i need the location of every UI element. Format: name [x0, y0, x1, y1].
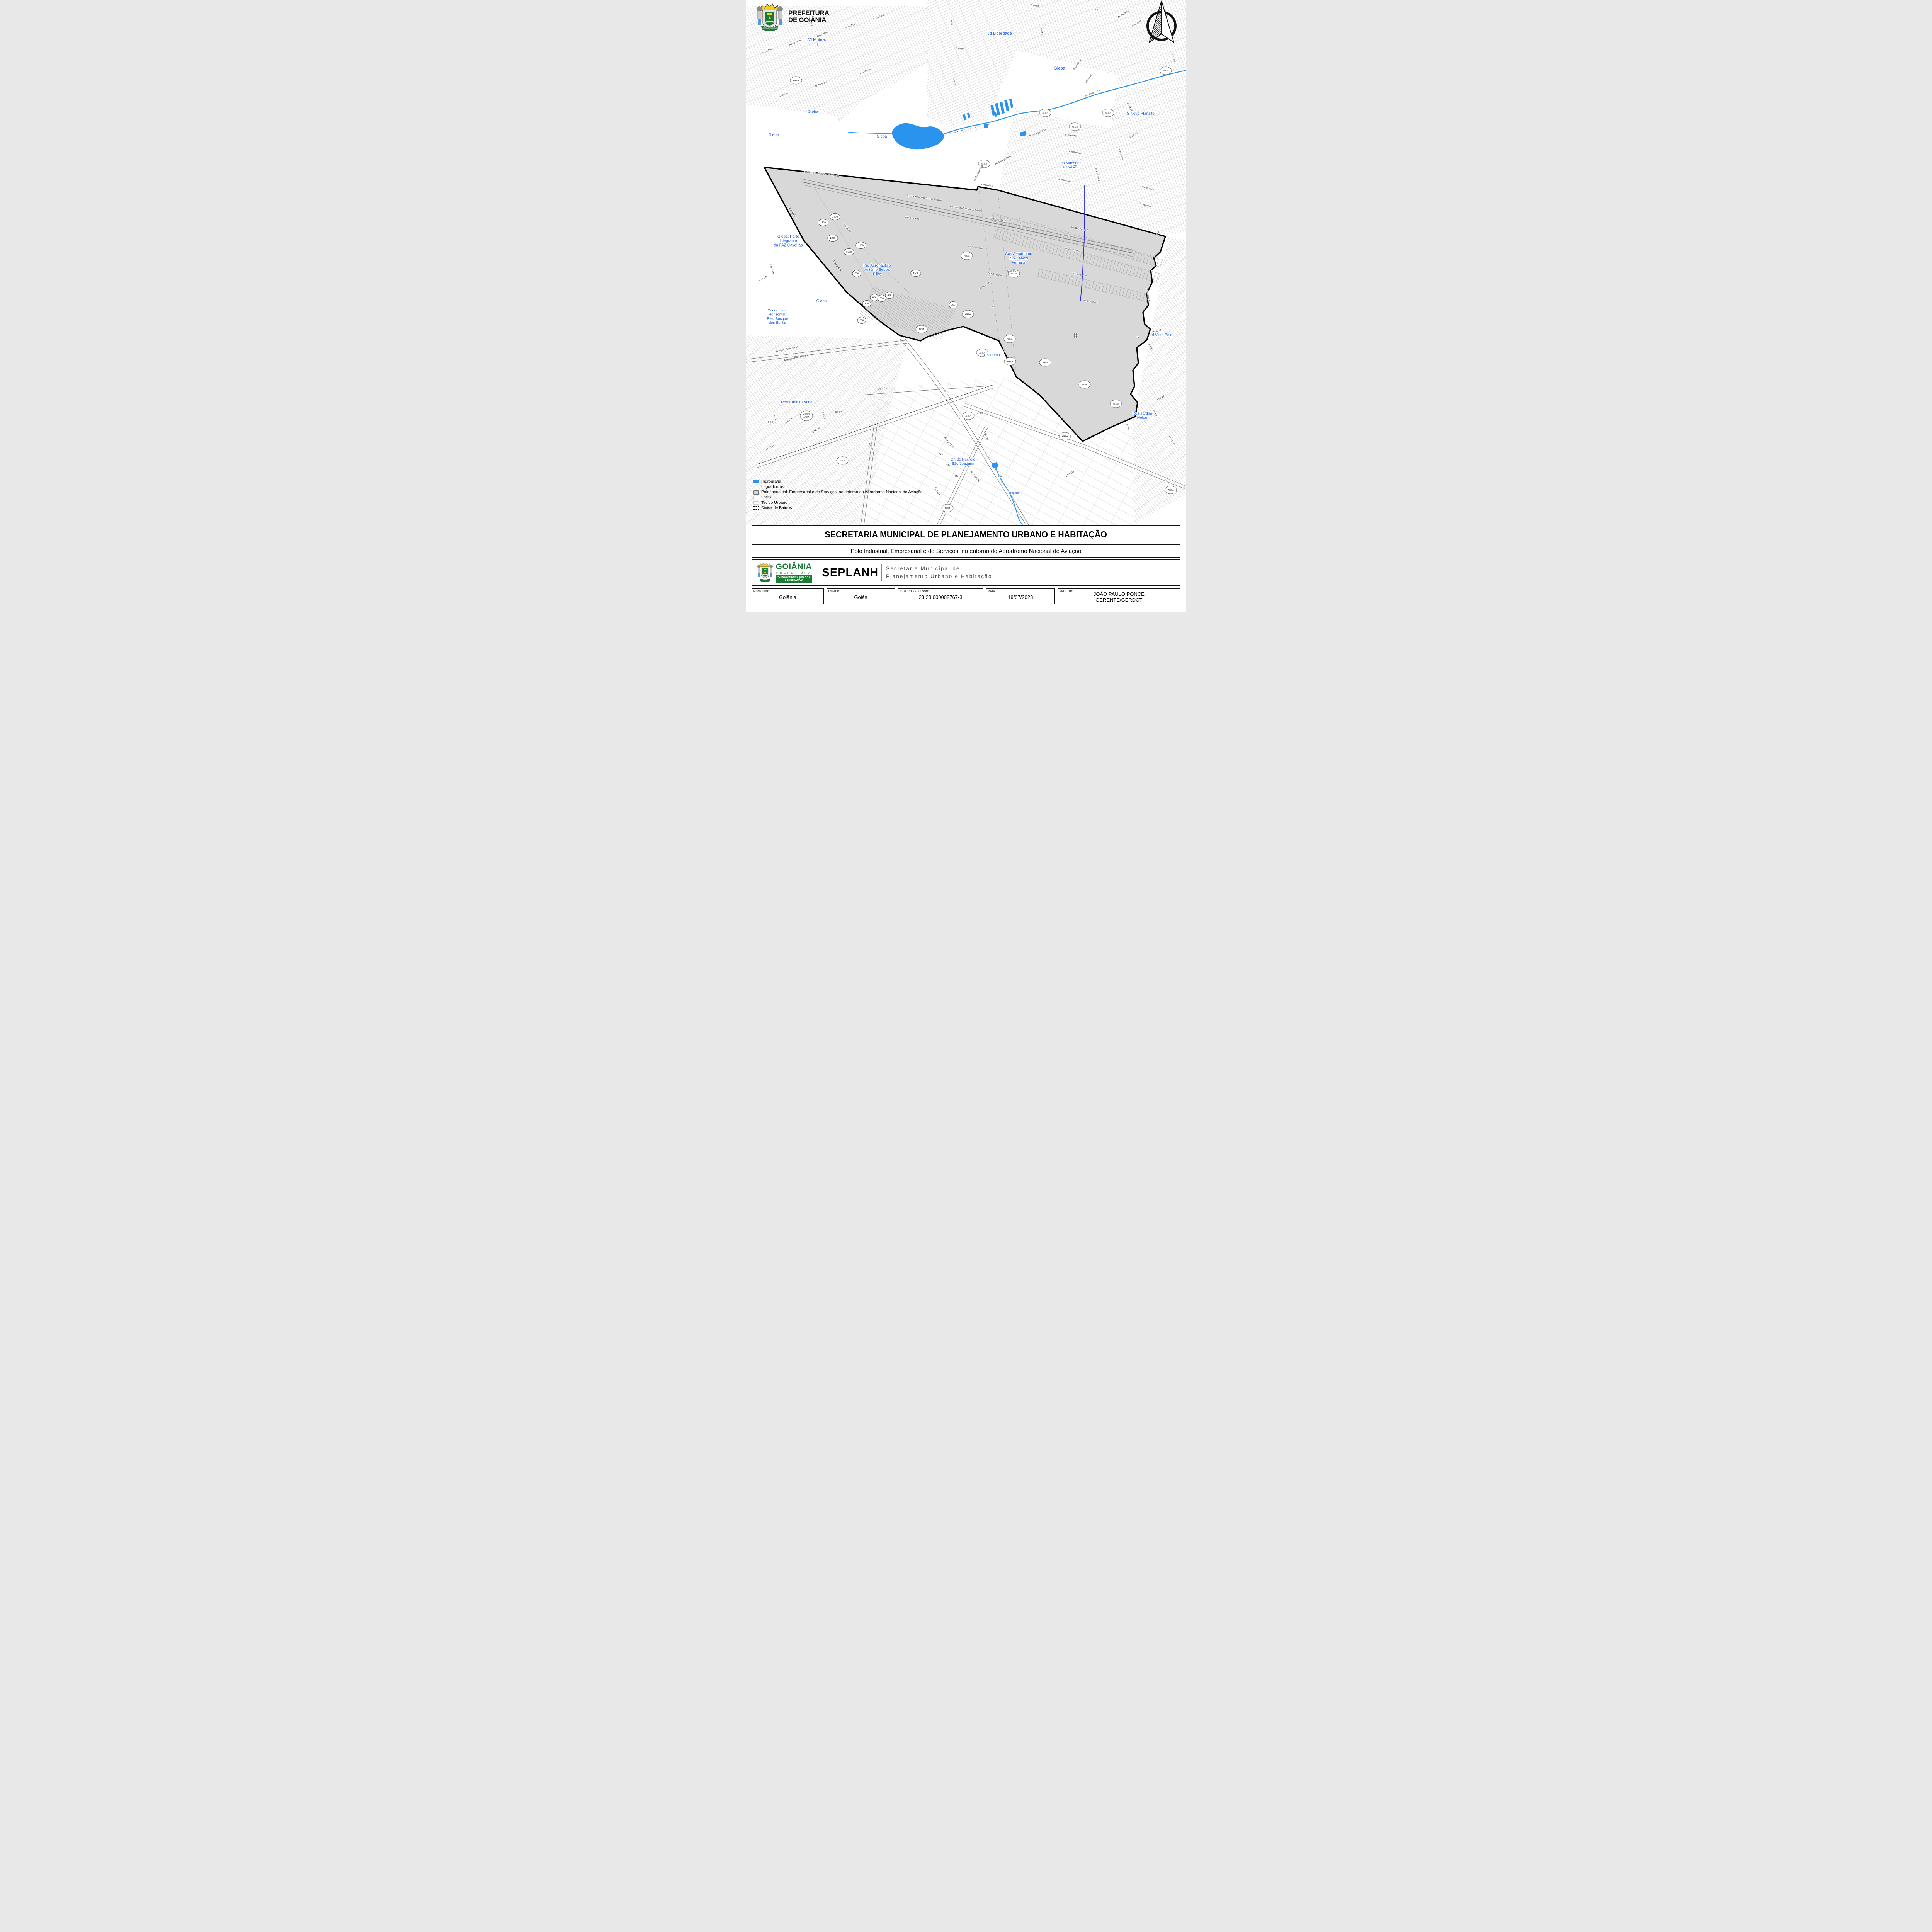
district-label: Ch de RecreioSão Joaquim [951, 457, 975, 466]
footer-logo-strip: GOIÂNIA PREFEITURA PLANEJAMENTO URBANO E… [752, 559, 1180, 586]
district-label: Gleba [816, 299, 827, 303]
district-label: Brejinho [1008, 491, 1020, 495]
goiania-prefeitura: PREFEITURA [776, 571, 812, 575]
district-label: Res Carla Cristina [781, 400, 813, 405]
district-label: Ch Helou [984, 353, 1000, 357]
area-marker-label: AREA [919, 328, 925, 331]
info-value: 23.28.000002767-3 [919, 595, 963, 600]
legend-label: Polo Industrial, Empresarial e de Serviç… [761, 490, 923, 495]
goiania-wordmark: GOIÂNIA PREFEITURA PLANEJAMENTO URBANO E… [776, 563, 812, 583]
sheet-subtitle: Polo Industrial, Empresarial e de Serviç… [752, 545, 1180, 558]
agency-name: Secretaria Municipal de Planejamento Urb… [886, 565, 992, 581]
info-value: Goiás [854, 595, 867, 600]
info-box-estado: ESTADO:Goiás [827, 588, 895, 604]
area-marker-label: AREA [945, 507, 951, 510]
sheet-footer: SECRETARIA MUNICIPAL DE PLANEJAMENTO URB… [752, 525, 1180, 604]
stream-line [848, 132, 892, 134]
legend-item-polo: Polo Industrial, Empresarial e de Serviç… [753, 490, 927, 495]
legend-item-tecido: Tecido Urbano [753, 500, 927, 505]
info-value: JOÃO PAULO PONCE [1094, 592, 1145, 597]
legend-label: Lotes [761, 495, 771, 500]
legend-swatch-divisa [753, 506, 759, 510]
area-marker-label: AREA [1163, 70, 1169, 72]
info-box-municipio: MUNICÍPIO:Goiânia [752, 588, 824, 604]
legend-label: Divisa de Bairros [761, 505, 792, 510]
seplanh-acronym: SEPLANH [822, 566, 879, 579]
vertical-divider [881, 564, 882, 581]
area-marker-label: AREA [1105, 112, 1111, 114]
legend-item-lotes: Lotes [753, 495, 927, 500]
zone-count-label: 1000 [846, 251, 852, 253]
goiania-coat-icon [756, 562, 774, 583]
apm-area-marker-label: AREA [804, 416, 810, 418]
zone-count-label: 1100 [858, 244, 864, 247]
street-label: AL Córrego Fundo [973, 163, 985, 182]
area-marker-label: AREA [1011, 273, 1017, 275]
building-icon [1075, 333, 1078, 338]
district-label: Jd Vista Bela [1150, 333, 1173, 337]
district-label: Gleba [769, 133, 779, 137]
legend-swatch-tecido [753, 501, 759, 505]
area-marker-label: AREA [1007, 338, 1013, 340]
legend-label: Logradouros [761, 485, 784, 490]
info-label: DATA: [988, 590, 996, 593]
street-label: 20A [1136, 337, 1140, 339]
area-marker-label: AREA [964, 255, 970, 257]
zone-count-label: 1400 [832, 216, 838, 218]
zone-count-label: 800 [860, 319, 864, 322]
apm-area-marker-label: APM 3 [803, 413, 810, 416]
sheet-title: SECRETARIA MUNICIPAL DE PLANEJAMENTO URB… [825, 529, 1107, 540]
street-label: R CC 7 [835, 411, 842, 413]
zone-count-label: 1300 [820, 221, 826, 224]
header-org-name: PREFEITURA DE GOIÂNIA [788, 10, 829, 24]
district-label: Gleba [1054, 66, 1065, 71]
info-label: MUNICÍPIO: [753, 590, 769, 593]
legend-label: Hidrografia [761, 479, 781, 484]
area-marker-label: AREA [1062, 435, 1068, 438]
district-label: CondomínioHorizontal:Res. Bosquedos Buri… [767, 308, 788, 325]
info-box-projeto: PROJETO:JOÃO PAULO PONCEGERENTE/GERDCT [1058, 588, 1180, 604]
title-bar: SECRETARIA MUNICIPAL DE PLANEJAMENTO URB… [752, 526, 1180, 543]
zone-count-label: 100 [951, 304, 956, 306]
info-label: ESTADO: [828, 590, 840, 593]
area-marker-label: AREA [1082, 384, 1088, 386]
area-marker-label: AREA [1113, 403, 1119, 405]
zone-count-label: 700 [855, 272, 859, 275]
street-label: AREA [1093, 9, 1099, 11]
street-label: SESCINC [1007, 270, 1016, 272]
area-marker-label: AREA [966, 415, 971, 417]
street-label: R Do Cafe [769, 264, 775, 275]
area-marker-label: AREA [1007, 361, 1013, 363]
goiania-name: GOIÂNIA [776, 563, 812, 571]
district-label: S Novo Planalto [1127, 112, 1155, 116]
info-value-2: GERENTE/GERDCT [1095, 597, 1142, 603]
zone-count-label: 600 [872, 296, 877, 299]
legend-swatch-logradouros [753, 487, 759, 487]
zone-count-label: 1200 [830, 237, 836, 240]
info-row: MUNICÍPIO:GoiâniaESTADO:GoiásNÚMERO PROC… [752, 588, 1180, 604]
apm-area-marker [800, 411, 813, 421]
area-marker-label: AREA [1043, 362, 1048, 364]
legend-item-logradouros: Logradouros [753, 485, 927, 490]
lake-polygon [892, 123, 944, 150]
area-marker-label: AREA [793, 80, 799, 82]
legend-item-hidrografia: Hidrografia [753, 479, 927, 484]
street-label: R CC 7 [768, 421, 775, 423]
area-marker-label: AREA [965, 313, 971, 316]
legend-label: Tecido Urbano [761, 500, 787, 505]
street-label: R Do Cafe [759, 275, 768, 282]
prefeitura-logo: PELA GRANDEZA DA PÁTRIA PREFEITURA DE GO… [754, 2, 829, 31]
divider-rule [752, 543, 1180, 545]
legend-swatch-polo [753, 490, 759, 495]
coat-of-arms-icon: PELA GRANDEZA DA PÁTRIA [754, 2, 785, 31]
zone-count-label: 500 [880, 297, 884, 300]
street-label: 449 [954, 475, 959, 478]
legend-item-divisa: Divisa de Bairros [753, 505, 927, 510]
info-box-numero-processo: NÚMERO PROCESSO:23.28.000002767-3 [898, 588, 983, 604]
area-marker-label: AREA [1043, 112, 1048, 114]
zone-count-label: 1500 [913, 272, 919, 275]
info-label: NÚMERO PROCESSO: [900, 590, 929, 593]
district-label: Gleba: ParteIntegranteda FAZ Caveiras [774, 235, 803, 247]
district-label: Jd Liberdade [987, 31, 1012, 36]
area-marker-label: AREA [1168, 489, 1174, 492]
street-label: 451 [939, 453, 943, 456]
map-canvas: AREAAREAAREAAREAAREAAREAAREAAREAAREAAREA… [746, 0, 1186, 525]
street-label: R 5 [992, 305, 995, 308]
street-label: 518 [998, 476, 1002, 478]
info-box-data: DATA:19/07/2023 [986, 588, 1055, 604]
info-value: 19/07/2023 [1008, 595, 1033, 600]
area-marker-label: AREA [840, 460, 845, 462]
legend-swatch-hidrografia [753, 480, 759, 483]
info-value: Goiânia [779, 595, 796, 600]
info-label: PROJETO: [1060, 590, 1073, 593]
map-legend: HidrografiaLogradourosPolo Industrial, E… [753, 479, 927, 511]
goiania-dept-box: PLANEJAMENTO URBANO E HABITAÇÃO [776, 575, 812, 583]
zone-count-label: 300 [865, 303, 869, 305]
district-label: Gleba [808, 110, 818, 114]
legend-swatch-lotes [753, 496, 759, 499]
zone-count-label: 400 [888, 294, 892, 297]
map-sheet: AREAAREAAREAAREAAREAAREAAREAAREAAREAAREA… [746, 0, 1186, 612]
district-label: Gleba [877, 134, 887, 139]
svg-text:PELA GRANDEZA DA PÁTRIA: PELA GRANDEZA DA PÁTRIA [760, 27, 779, 29]
street-label: 450 [946, 464, 951, 466]
area-marker-label: AREA [1072, 126, 1078, 128]
